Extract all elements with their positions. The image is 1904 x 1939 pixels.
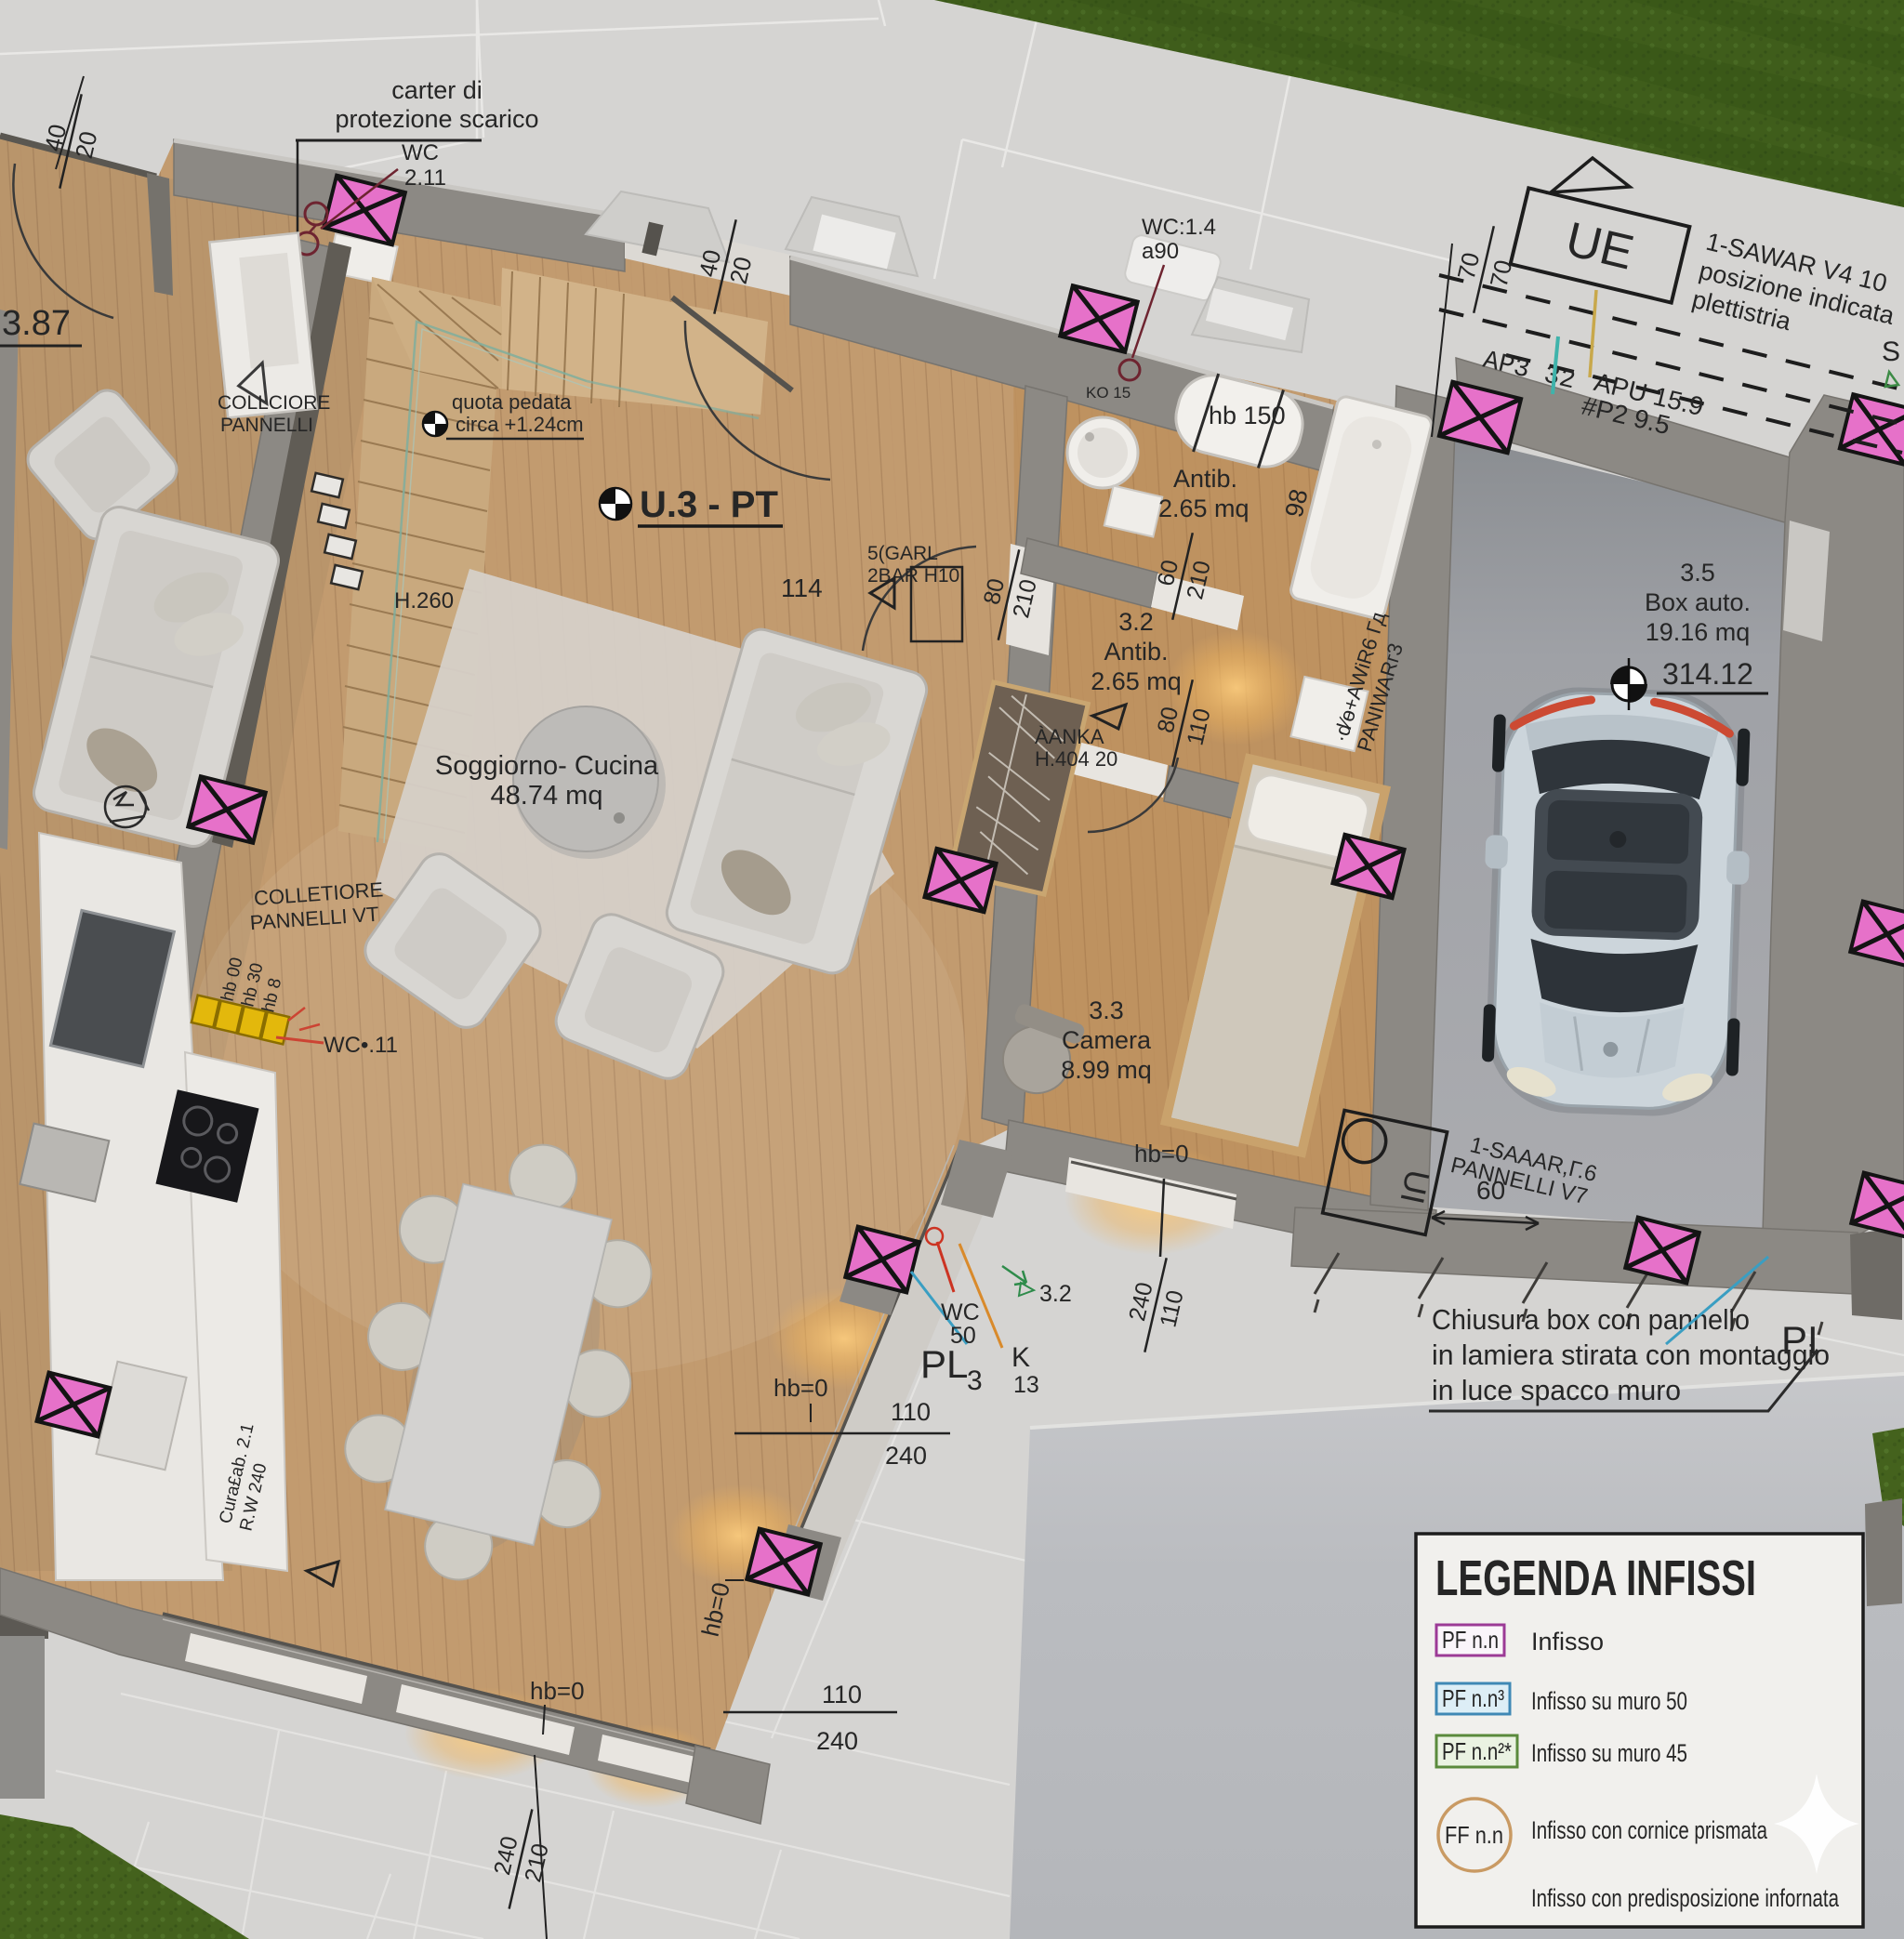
svg-text:3.3: 3.3 [1089,996,1124,1024]
svg-text:Infisso su muro 50: Infisso su muro 50 [1531,1687,1687,1715]
svg-text:WC•.11: WC•.11 [324,1033,398,1058]
svg-text:WC: WC [402,140,439,165]
svg-text:H.260: H.260 [394,588,454,613]
svg-text:Infisso con predisposizione in: Infisso con predisposizione infornata [1531,1884,1840,1912]
svg-text:Soggiorno- Cucina: Soggiorno- Cucina [435,751,659,781]
svg-text:Box auto.: Box auto. [1645,588,1751,616]
svg-text:Antib.: Antib. [1173,465,1237,493]
svg-text:Infisso su muro 45: Infisso su muro 45 [1531,1739,1687,1767]
svg-text:PI: PI [1781,1318,1818,1362]
svg-text:PANNELLI: PANNELLI [220,415,313,436]
svg-text:Chiusura box con pannello: Chiusura box con pannello [1432,1303,1750,1336]
svg-text:2.65 mq: 2.65 mq [1091,667,1182,695]
svg-text:H.404 20: H.404 20 [1035,747,1117,771]
svg-text:5(GARL: 5(GARL [867,543,938,564]
svg-text:60: 60 [1476,1176,1505,1205]
svg-text:PF n.n³: PF n.n³ [1442,1684,1504,1712]
svg-text:S: S [1882,336,1900,367]
svg-text:PF n.n²*: PF n.n²* [1442,1737,1512,1765]
svg-text:110: 110 [891,1398,931,1426]
svg-text:2.11: 2.11 [404,165,446,191]
svg-text:WC: WC [941,1299,980,1326]
svg-text:314.12: 314.12 [1662,657,1753,691]
svg-text:circa +1.24cm: circa +1.24cm [456,413,584,436]
svg-text:hb=0: hb=0 [773,1374,828,1402]
svg-text:114: 114 [781,574,823,602]
svg-text:2.65 mq: 2.65 mq [1158,495,1249,522]
svg-text:protezione scarico: protezione scarico [335,105,538,133]
svg-text:3.5: 3.5 [1680,559,1715,587]
svg-text:Antib.: Antib. [1104,638,1168,666]
svg-text:hb=0: hb=0 [1134,1140,1189,1167]
svg-text:3.2: 3.2 [1039,1281,1072,1307]
svg-text:3: 3 [967,1365,983,1396]
svg-text:PF n.n: PF n.n [1442,1626,1499,1654]
svg-text:110: 110 [822,1681,862,1708]
svg-text:240: 240 [816,1727,858,1755]
svg-text:hb=0: hb=0 [530,1677,585,1705]
svg-text:2BAR H10: 2BAR H10 [867,565,959,587]
svg-text:U.3 - PT: U.3 - PT [640,484,778,525]
svg-text:WC:1.4: WC:1.4 [1142,215,1216,240]
svg-text:48.74 mq: 48.74 mq [491,781,603,811]
svg-text:240: 240 [885,1442,927,1470]
svg-text:carter di: carter di [391,76,483,104]
svg-text:quota pedata: quota pedata [452,390,572,414]
svg-text:LEGENDA INFISSI: LEGENDA INFISSI [1435,1550,1756,1606]
svg-text:3.87: 3.87 [2,304,71,343]
svg-text:FF n.n: FF n.n [1445,1821,1503,1849]
svg-text:13: 13 [1013,1372,1039,1398]
svg-text:19.16 mq: 19.16 mq [1646,618,1751,646]
svg-text:Infisso con cornice prismata: Infisso con cornice prismata [1531,1816,1768,1844]
svg-text:hb 150: hb 150 [1209,402,1286,429]
svg-text:in luce spacco muro: in luce spacco muro [1432,1374,1681,1406]
svg-text:a90: a90 [1142,239,1179,264]
svg-text:K: K [1011,1342,1030,1373]
svg-text:ÀANKA: ÀANKA [1035,725,1104,748]
svg-text:PL: PL [920,1342,968,1386]
svg-text:3.2: 3.2 [1118,608,1154,636]
svg-text:8.99 mq: 8.99 mq [1061,1056,1152,1084]
svg-text:COLLCIORE: COLLCIORE [218,392,330,414]
svg-text:Camera: Camera [1062,1026,1152,1054]
svg-text:Infisso: Infisso [1531,1628,1604,1655]
svg-text:KO 15: KO 15 [1086,384,1130,402]
svg-text:in lamiera stirata con montagg: in lamiera stirata con montaggio [1432,1339,1830,1371]
